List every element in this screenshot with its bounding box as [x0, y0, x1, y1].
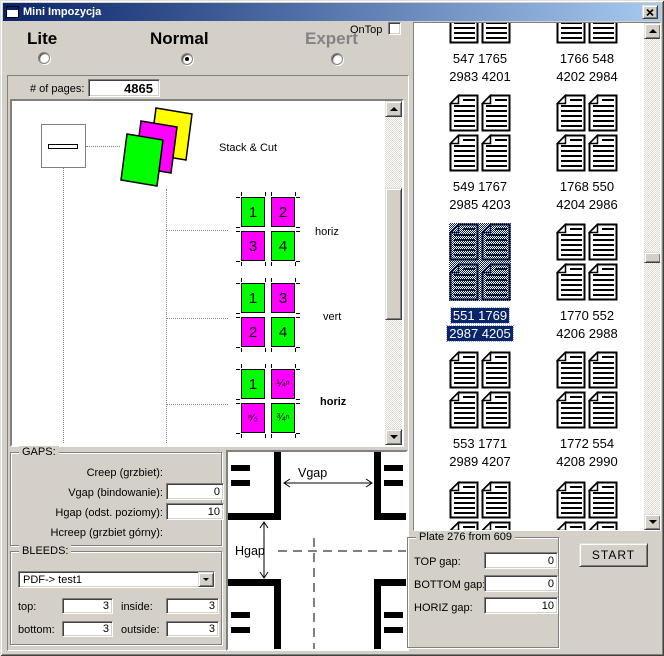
plate-item[interactable]: 547 17652983 4201 [440, 22, 520, 85]
ontop-label: OnTop [350, 24, 382, 36]
crop-mark [236, 369, 240, 370]
hgap-label: Hgap (odst. poziomy): [17, 507, 163, 519]
crop-mark [236, 227, 240, 228]
pages-input[interactable] [88, 79, 160, 97]
crop-mark [236, 347, 240, 348]
bleeds-title: BLEEDS: [19, 545, 71, 557]
stack-cut-icon [120, 106, 198, 192]
crop-mark [296, 283, 300, 284]
stack-cut-label: Stack & Cut [219, 142, 277, 154]
mode-label-normal: Normal [150, 29, 209, 49]
imposition-tree-panel: Stack & Cut 123413241¼ⁿⁿ⁄₂¾ⁿ horiz vert … [10, 99, 404, 447]
crop-mark [236, 231, 240, 232]
crop-mark [236, 283, 240, 284]
document-icon [556, 22, 586, 44]
document-icon [588, 351, 618, 389]
crop-mark [296, 231, 300, 232]
plate-pages-text: 1766 548 [558, 51, 616, 66]
hgap-diagram-label: Hgap [235, 544, 265, 558]
plate-item[interactable] [547, 481, 627, 531]
tree-line [86, 146, 120, 147]
plate-pages-label: 549 1767 [440, 178, 520, 195]
crop-mark [271, 192, 272, 196]
bleed-inside-input[interactable] [166, 598, 219, 614]
window-title: Mini Impozycja [23, 6, 101, 18]
plate-list: 547 17652983 42011766 5484202 2984549 17… [413, 22, 661, 531]
crop-mark [265, 192, 266, 196]
plate-pages-label: 2989 4207 [440, 453, 520, 470]
crop-mark [296, 317, 300, 318]
plate-item[interactable]: 1766 5484202 2984 [547, 22, 627, 85]
plate-pages-label: 4202 2984 [547, 68, 627, 85]
selection-overlay [449, 223, 511, 301]
plate-pages-label: 2987 4205 [440, 325, 520, 342]
crop-mark [241, 434, 242, 438]
plate-pages-text: 2985 4203 [447, 197, 512, 212]
plate-thumbnails [556, 94, 618, 172]
crop-mark [265, 262, 266, 266]
document-icon [481, 391, 511, 429]
crop-mark [295, 192, 296, 196]
crop-mark [295, 348, 296, 352]
gap-diagram: Vgap Hgap [228, 452, 406, 649]
document-icon [449, 481, 479, 519]
crop-mark [236, 433, 240, 434]
crop-mark [236, 317, 240, 318]
plate-pages-text: 2989 4207 [447, 454, 512, 469]
bleeds-profile-dropdown[interactable]: PDF-> test1 [18, 571, 215, 588]
horiz-gap-input[interactable] [484, 597, 558, 614]
imposition-group: 1234 [241, 197, 295, 261]
scroll-up-button[interactable] [644, 23, 661, 39]
crop-mark [271, 278, 272, 282]
plate-item[interactable]: 1772 5544208 2990 [547, 351, 627, 470]
crop-mark [236, 399, 240, 400]
gap-diagram-panel: Vgap Hgap [226, 450, 408, 651]
plate-pages-text: 4204 2986 [554, 197, 619, 212]
group-label-horiz-1: horiz [315, 226, 339, 238]
document-icon [449, 521, 479, 531]
hcreep-label: Hcreep (grzbiet górny): [17, 527, 163, 539]
tree-branch [166, 318, 228, 319]
top-gap-label: TOP gap: [414, 556, 461, 568]
sheet-line [48, 144, 78, 149]
imposition-cell: ⁿ⁄₂ [241, 403, 265, 433]
document-icon [449, 391, 479, 429]
imposition-cell: 1 [241, 369, 265, 399]
document-icon [588, 94, 618, 132]
document-icon [556, 521, 586, 531]
title-bar: Mini Impozycja [3, 3, 661, 21]
crop-mark [236, 261, 240, 262]
plate-pages-label: 1768 550 [547, 178, 627, 195]
scroll-up-button[interactable] [385, 101, 402, 117]
plate-pages-text: 4206 2988 [554, 326, 619, 341]
plate-pages-text: 549 1767 [451, 179, 509, 194]
crop-mark [241, 278, 242, 282]
vgap-input[interactable] [166, 483, 224, 500]
document-icon [481, 94, 511, 132]
plate-pages-label: 553 1771 [440, 435, 520, 452]
tree-line [63, 168, 64, 443]
plate-pages-text: 2983 4201 [447, 69, 512, 84]
imposition-cell: 4 [271, 231, 295, 261]
plate-pages-text: 2987 4205 [447, 326, 512, 341]
arrow-down-icon [649, 520, 657, 528]
crop-mark [236, 313, 240, 314]
plate-thumbnails [556, 351, 618, 429]
document-icon [556, 94, 586, 132]
crop-mark [241, 262, 242, 266]
document-icon [588, 134, 618, 172]
crop-mark [236, 403, 240, 404]
crop-mark [265, 434, 266, 438]
scroll-down-button[interactable] [644, 514, 661, 530]
document-icon [588, 263, 618, 301]
plate-pages-text: 551 1769 [451, 308, 509, 323]
app-window: Mini Impozycja Lite Normal Expert OnTop … [0, 0, 664, 656]
crop-mark [241, 348, 242, 352]
crop-mark [271, 434, 272, 438]
plate-thumbnails [556, 223, 618, 301]
gaps-groupbox: GAPS: Creep (grzbiet): Vgap (bindowanie)… [10, 452, 222, 546]
bottom-gap-label: BOTTOM gap: [414, 579, 485, 591]
crop-mark [296, 197, 300, 198]
document-icon [481, 481, 511, 519]
bleeds-groupbox: BLEEDS: PDF-> test1 top: inside: bottom:… [10, 551, 222, 645]
radio-normal[interactable] [181, 53, 193, 65]
sheet-source-icon [41, 124, 86, 168]
group-label-horiz-2: horiz [320, 396, 346, 408]
document-icon [588, 391, 618, 429]
close-icon [646, 9, 654, 16]
dropdown-arrow-button[interactable] [198, 572, 214, 587]
crop-mark [295, 262, 296, 266]
plate-thumbnails [449, 481, 511, 531]
document-icon [588, 481, 618, 519]
bottom-gap-input[interactable] [484, 575, 558, 592]
plate-item[interactable]: 551 17692987 4205 [440, 223, 520, 342]
plate-pages-label: 1770 552 [547, 307, 627, 324]
tree-branch [166, 404, 228, 405]
hgap-input[interactable] [166, 503, 224, 520]
plate-thumbnails [449, 94, 511, 172]
imposition-group: 1¼ⁿⁿ⁄₂¾ⁿ [241, 369, 295, 433]
tree-branch [166, 230, 228, 231]
crop-mark [241, 192, 242, 196]
plate-pages-text: 1772 554 [558, 436, 616, 451]
bleed-bottom-label: bottom: [18, 624, 55, 636]
plate-item[interactable] [440, 481, 520, 531]
plate-pages-label: 4204 2986 [547, 196, 627, 213]
bleed-top-input[interactable] [62, 598, 113, 614]
plate-pages-label: 4206 2988 [547, 325, 627, 342]
plate-pages-label: 2985 4203 [440, 196, 520, 213]
imposition-cell: 4 [271, 317, 295, 347]
document-icon [588, 22, 618, 44]
crop-mark [265, 348, 266, 352]
document-icon [556, 263, 586, 301]
document-icon [556, 351, 586, 389]
imposition-cell: 3 [271, 283, 295, 313]
document-icon [588, 223, 618, 261]
bleed-inside-label: inside: [121, 601, 153, 613]
vgap-label: Vgap (bindowanie): [17, 487, 163, 499]
plate-pages-text: 1770 552 [558, 308, 616, 323]
plate-thumbnails [556, 481, 618, 531]
vgap-diagram-label: Vgap [298, 466, 327, 480]
plate-thumbnails [449, 22, 511, 44]
document-icon [556, 391, 586, 429]
mode-label-lite: Lite [27, 29, 57, 49]
plate-item[interactable]: 553 17712989 4207 [440, 351, 520, 470]
plate-pages-label: 2983 4201 [440, 68, 520, 85]
crop-mark [295, 434, 296, 438]
top-gap-input[interactable] [484, 552, 558, 569]
pages-label: # of pages: [30, 83, 84, 95]
crop-mark [241, 364, 242, 368]
plate-thumbnails [556, 22, 618, 44]
crop-mark [296, 227, 300, 228]
crop-mark [271, 364, 272, 368]
plate-item[interactable]: 549 17672985 4203 [440, 94, 520, 213]
radio-lite[interactable] [38, 52, 50, 64]
crop-mark [295, 278, 296, 282]
chevron-down-icon [203, 578, 209, 584]
ontop-checkbox[interactable] [388, 22, 401, 35]
imposition-group: 1324 [241, 283, 295, 347]
bleed-top-label: top: [18, 601, 36, 613]
imposition-cell: ¼ⁿ [271, 369, 295, 399]
plate-thumbnails [449, 351, 511, 429]
crop-mark [296, 261, 300, 262]
gaps-title: GAPS: [19, 446, 59, 458]
dropdown-value: PDF-> test1 [23, 574, 82, 586]
imposition-cell: 1 [241, 283, 265, 313]
crop-mark [296, 313, 300, 314]
imposition-cell: 3 [241, 231, 265, 261]
document-icon [481, 134, 511, 172]
document-icon [481, 521, 511, 531]
document-icon [449, 134, 479, 172]
crop-mark [296, 403, 300, 404]
crop-mark [271, 348, 272, 352]
document-icon [449, 94, 479, 132]
creep-label: Creep (grzbiet): [17, 467, 163, 479]
crop-mark [295, 364, 296, 368]
document-icon [556, 481, 586, 519]
imposition-cell: 1 [241, 197, 265, 227]
imposition-cell: ¾ⁿ [271, 403, 295, 433]
crop-mark [271, 262, 272, 266]
radio-expert[interactable] [331, 53, 343, 65]
app-icon [6, 6, 19, 18]
plate-pages-label: 547 1765 [440, 50, 520, 67]
plate-item[interactable]: 1770 5524206 2988 [547, 223, 627, 342]
start-button[interactable]: START [579, 543, 648, 567]
arrow-up-icon [649, 25, 657, 33]
scrollbar-thumb[interactable] [644, 252, 661, 263]
plate-pages-label: 1766 548 [547, 50, 627, 67]
close-button[interactable] [642, 5, 658, 19]
bleed-bottom-input[interactable] [62, 621, 113, 637]
imposition-cell: 2 [241, 317, 265, 347]
document-icon [449, 22, 479, 44]
plate-pages-text: 547 1765 [451, 51, 509, 66]
list-scrollbar[interactable] [644, 23, 661, 530]
plate-pages-text: 1768 550 [558, 179, 616, 194]
bleed-outside-input[interactable] [166, 621, 219, 637]
crop-mark [265, 364, 266, 368]
plate-pages-text: 4208 2990 [554, 454, 619, 469]
crop-mark [296, 399, 300, 400]
document-icon [481, 351, 511, 389]
group-label-vert: vert [323, 311, 341, 323]
plate-title: Plate 276 from 609 [416, 531, 515, 543]
document-icon [449, 351, 479, 389]
plate-pages-label: 551 1769 [440, 307, 520, 324]
document-icon [556, 134, 586, 172]
bleed-outside-label: outside: [121, 624, 160, 636]
plate-groupbox: Plate 276 from 609 TOP gap: BOTTOM gap: … [407, 537, 559, 648]
horiz-gap-label: HORIZ gap: [414, 602, 473, 614]
document-icon [556, 223, 586, 261]
plate-pages-text: 4202 2984 [554, 69, 619, 84]
document-icon [588, 521, 618, 531]
crop-mark [296, 369, 300, 370]
plate-item[interactable]: 1768 5504204 2986 [547, 94, 627, 213]
document-icon [481, 22, 511, 44]
tree-scrollbar[interactable] [385, 101, 402, 445]
arrow-up-icon [390, 103, 398, 111]
plate-pages-text: 553 1771 [451, 436, 509, 451]
plate-pages-label: 4208 2990 [547, 453, 627, 470]
arrow-down-icon [390, 435, 398, 443]
plate-thumbnails [449, 223, 511, 301]
crop-mark [296, 433, 300, 434]
plate-pages-label: 1772 554 [547, 435, 627, 452]
crop-mark [296, 347, 300, 348]
imposition-cell: 2 [271, 197, 295, 227]
scrollbar-thumb[interactable] [385, 188, 402, 320]
crop-mark [265, 278, 266, 282]
crop-mark [236, 197, 240, 198]
scroll-down-button[interactable] [385, 429, 402, 445]
